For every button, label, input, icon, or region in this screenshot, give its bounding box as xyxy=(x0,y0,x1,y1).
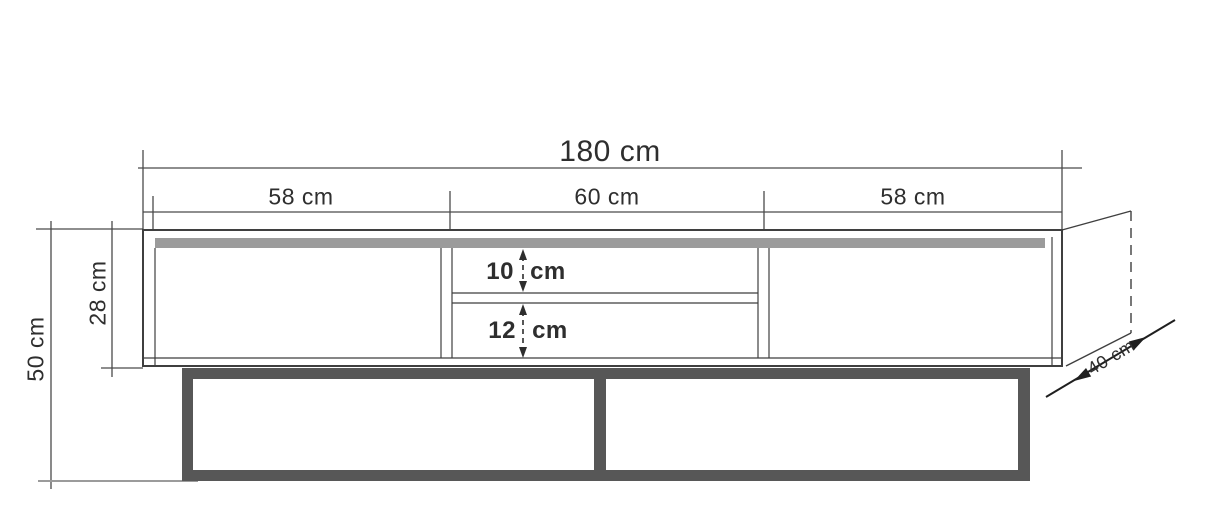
cabinet-front xyxy=(143,230,1062,366)
dimension-label-upper-shelf-gap: 10 cm xyxy=(486,260,566,284)
base-frame xyxy=(182,368,1030,481)
cabinet-top-panel-strip xyxy=(155,238,1045,248)
dimension-label-lower-shelf-gap: 12 cm xyxy=(488,319,568,343)
dimension-label-middle-section: 60 cm xyxy=(574,186,639,209)
technical-drawing: 180 cm 58 cm 60 cm 58 cm 50 cm 28 cm 10 … xyxy=(0,0,1220,532)
dimension-label-total-height: 50 cm xyxy=(25,316,48,381)
dimension-label-body-height: 28 cm xyxy=(87,260,110,325)
dimension-label-left-section: 58 cm xyxy=(268,186,333,209)
drawing-linework xyxy=(0,0,1220,532)
dimension-label-total-width: 180 cm xyxy=(559,137,660,167)
dimension-label-right-section: 58 cm xyxy=(880,186,945,209)
